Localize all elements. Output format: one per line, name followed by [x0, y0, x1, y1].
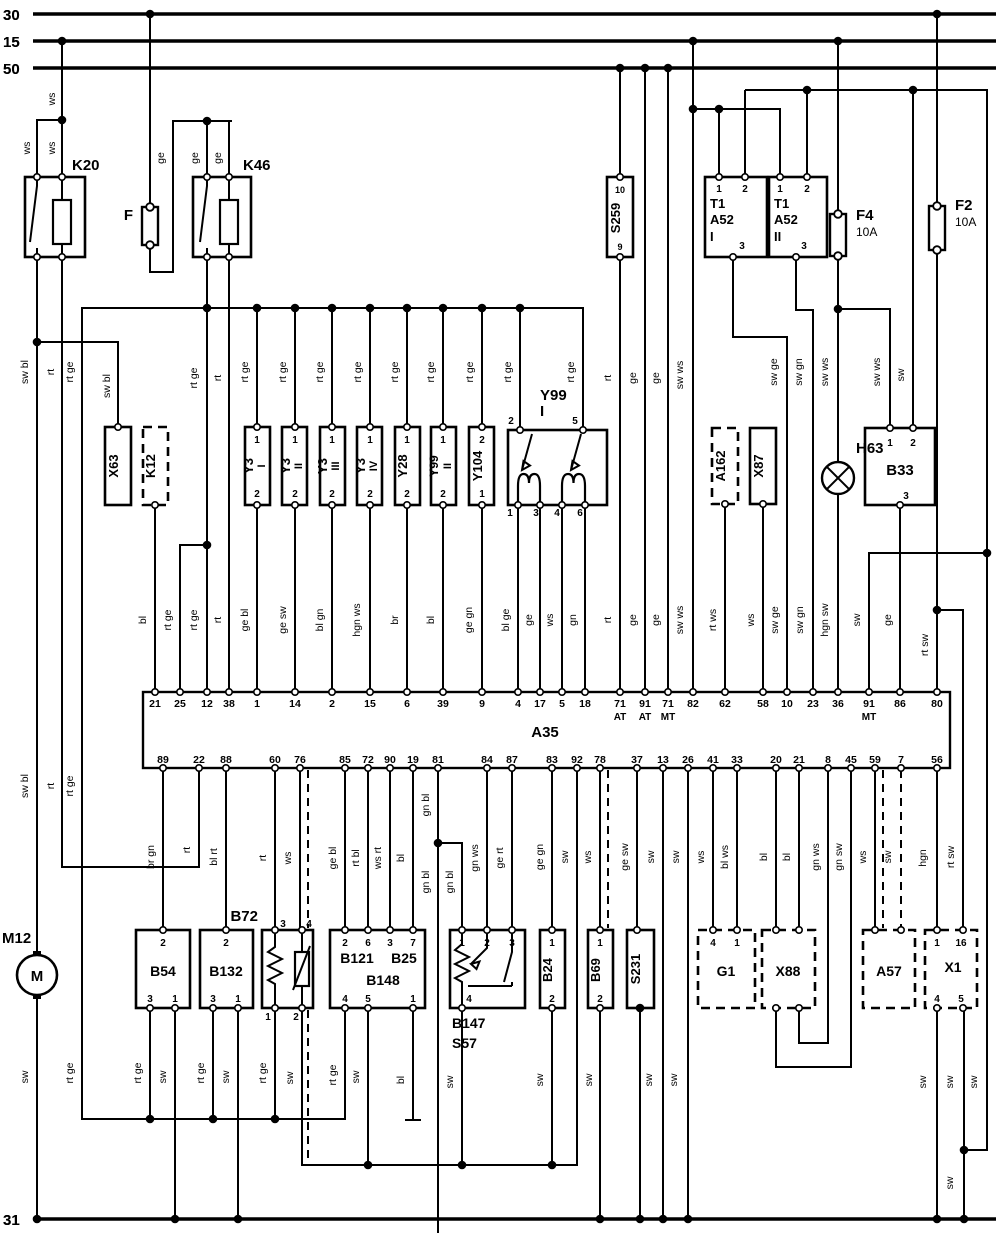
fuse-cap-icon [834, 252, 842, 260]
pin-bump [329, 424, 335, 430]
component-label: B148 [366, 972, 400, 988]
pin-bump [898, 927, 904, 933]
pin-bump [342, 927, 348, 933]
component-label: Y3 [278, 458, 293, 474]
wire [776, 768, 851, 1067]
wire-label: bl gn [314, 608, 326, 631]
component-label: 84 [481, 754, 493, 766]
component-label: AT [614, 712, 627, 723]
component-label: 2 [549, 994, 555, 1005]
component-label: 45 [845, 754, 857, 766]
component-label: 3 [801, 241, 807, 252]
component-label: A52 [710, 212, 734, 227]
component-label: 22 [193, 754, 205, 766]
wire-label: rt ge [162, 609, 174, 630]
wire-label: sw ge [769, 606, 781, 634]
component-label: 1 [734, 938, 740, 949]
component-label: 2 [597, 994, 603, 1005]
pin-bump [292, 689, 298, 695]
pin-bump [742, 174, 748, 180]
component-label: A57 [876, 963, 902, 979]
fuse-icon-F2 [929, 206, 945, 250]
component-label: B25 [391, 950, 417, 966]
pin-bump [934, 927, 940, 933]
wire-label: rt [45, 369, 57, 375]
wire-label: rt ge [195, 1062, 207, 1083]
component-label: 71 [614, 698, 626, 710]
pin-bump [804, 174, 810, 180]
wire-label: ws [544, 614, 556, 628]
component-label: A35 [531, 724, 559, 741]
wire-label: ge bl [239, 609, 251, 632]
pin-bump [796, 1005, 802, 1011]
junction-dot [33, 1215, 42, 1224]
wire-label: hgn ws [351, 603, 363, 636]
component-label: F2 [955, 197, 973, 214]
pin-bump [722, 501, 728, 507]
component-label: 17 [534, 698, 546, 710]
wire-label: rt ge [188, 609, 200, 630]
pin-bump [559, 689, 565, 695]
wire-label: ws [46, 93, 58, 107]
wire-label: rt sw [945, 846, 957, 869]
wire-label: rt [212, 375, 224, 381]
wire-label: sw [944, 1075, 956, 1088]
component-label: Y3 [353, 458, 368, 474]
wire-label: sw [917, 1075, 929, 1088]
junction-dot [458, 1161, 467, 1170]
junction-dot [684, 1215, 693, 1224]
wire-label: sw [851, 613, 863, 626]
wire-label: rt ge [239, 361, 251, 382]
wire-label: sw [882, 850, 894, 863]
component-label: 2 [479, 435, 485, 446]
pin-bump [515, 502, 521, 508]
component-label: 38 [223, 698, 235, 710]
component-label: 3 [280, 919, 286, 930]
wire-label: rt [45, 783, 57, 789]
junction-dot [171, 1215, 180, 1224]
wiring-diagram-page: 30155031MA352125123811421563994175187191… [0, 0, 1000, 1233]
fuse-cap-icon [146, 241, 154, 249]
pin-bump [793, 254, 799, 260]
component-label: 56 [931, 754, 943, 766]
pin-bump [887, 425, 893, 431]
wire-label: ge [627, 372, 639, 384]
pin-bump [517, 427, 523, 433]
junction-dot [659, 1215, 668, 1224]
pin-bump [223, 927, 229, 933]
component-label: 1 [887, 438, 893, 449]
wire-label: ws [282, 852, 294, 866]
pin-bump [226, 174, 232, 180]
pin-bump [617, 689, 623, 695]
component-label: II [293, 463, 305, 469]
component-label: 36 [832, 698, 844, 710]
wire-label: ge sw [619, 843, 631, 871]
pin-bump [960, 1005, 966, 1011]
pin-bump [365, 1005, 371, 1011]
component-label: Y3 [241, 458, 256, 474]
component-label: 7 [898, 754, 904, 766]
component-label: 82 [687, 698, 699, 710]
wire-label: 10A [955, 215, 976, 229]
wire-label: ge gn [463, 607, 475, 633]
pin-bump [515, 689, 521, 695]
wire-label: ws [21, 142, 33, 156]
wire-label: ge rt [494, 847, 506, 868]
junction-dot [641, 64, 650, 73]
component-label: 4 [342, 994, 348, 1005]
pin-bump [549, 927, 555, 933]
junction-dot [203, 541, 212, 550]
wire-label: gn ws [810, 843, 822, 870]
component-label: 5 [559, 698, 565, 710]
wire-label: sw ge [768, 358, 780, 386]
component-label: 88 [220, 754, 232, 766]
pin-bump [387, 927, 393, 933]
wire-label: rt [181, 847, 193, 853]
component-label: F4 [856, 207, 874, 224]
component-label: 1 [410, 994, 416, 1005]
component-label: 5 [958, 994, 964, 1005]
pin-bump [254, 502, 260, 508]
wire-label: rt bl [350, 849, 362, 867]
wire-label: rt ge [352, 361, 364, 382]
component-label: 1 [459, 938, 465, 949]
component-label: 10 [781, 698, 793, 710]
pin-bump [459, 1005, 465, 1011]
component-label: B69 [588, 958, 603, 982]
pin-bump [910, 425, 916, 431]
wire-label: sw [220, 1070, 232, 1083]
component-label: 59 [869, 754, 881, 766]
component-label: 31 [3, 1212, 20, 1229]
pin-bump [367, 689, 373, 695]
component-label: 4 [710, 938, 716, 949]
pin-bump [410, 927, 416, 933]
component-label: 2 [160, 938, 166, 949]
wire-label: sw [284, 1071, 296, 1084]
component-label: X88 [776, 963, 801, 979]
component-label: 9 [479, 698, 485, 710]
wire-label: rt [257, 855, 269, 861]
wire-label: bl [425, 616, 437, 624]
pin-bump [597, 1005, 603, 1011]
component-label: 2 [367, 489, 373, 500]
wire-label: ws [857, 851, 869, 865]
component-label: 58 [757, 698, 769, 710]
component-label: 86 [894, 698, 906, 710]
junction-dot [366, 304, 375, 313]
component-label: 3 [533, 508, 539, 519]
pin-bump [897, 502, 903, 508]
wire-label: br gn [145, 845, 157, 869]
component-label: 2 [742, 184, 748, 195]
wire-label: rt ge [464, 361, 476, 382]
component-label: 1 [254, 698, 260, 710]
component-label: T1 [710, 196, 725, 211]
component-label: 7 [410, 938, 416, 949]
component-label: I [256, 464, 268, 467]
component-label: 4 [466, 994, 472, 1005]
wire-label: rt ge [327, 1064, 339, 1085]
junction-dot [328, 304, 337, 313]
wire-label: ws [745, 614, 757, 628]
component-label: II [774, 229, 781, 244]
component-label: 8 [825, 754, 831, 766]
pin-bump [582, 689, 588, 695]
junction-dot [403, 304, 412, 313]
component-label: 2 [223, 938, 229, 949]
pin-bump [634, 927, 640, 933]
junction-dot [439, 304, 448, 313]
component-label: 76 [294, 754, 306, 766]
component-label: Y3 [315, 458, 330, 474]
wire-label: sw ws [871, 358, 883, 387]
wire-label: sw [670, 850, 682, 863]
wire [693, 109, 780, 177]
wire-label: ws rt [372, 847, 384, 870]
wire-label: ge [882, 614, 894, 626]
junction-dot [548, 1161, 557, 1170]
component-label: 9 [617, 242, 622, 252]
wire-label: ge gn [534, 844, 546, 870]
component-label: K20 [72, 157, 100, 174]
junction-dot [516, 304, 525, 313]
component-label: 91 [639, 698, 651, 710]
junction-dot [203, 304, 212, 313]
pin-bump [177, 689, 183, 695]
wire-label: rt ge [502, 361, 514, 382]
pin-bump [897, 689, 903, 695]
wire-label: sw [19, 1070, 31, 1083]
component-label: MT [661, 712, 675, 723]
pin-bump [367, 424, 373, 430]
fuse-cap-icon [834, 210, 842, 218]
wire-label: hgn sw [819, 603, 831, 637]
component-label: 2 [910, 438, 916, 449]
wire-label: rt ge [277, 361, 289, 382]
pin-bump [597, 927, 603, 933]
junction-dot [146, 10, 155, 19]
component-label: 3 [739, 241, 745, 252]
junction-dot [933, 10, 942, 19]
pin-bump [934, 1005, 940, 1011]
pin-bump [410, 1005, 416, 1011]
pin-bump [484, 927, 490, 933]
pin-bump [479, 689, 485, 695]
junction-dot [834, 37, 843, 46]
component-label: 6 [365, 938, 371, 949]
pin-bump [404, 689, 410, 695]
wire-label: gn sw [833, 843, 845, 871]
junction-dot [478, 304, 487, 313]
pin-bump [960, 927, 966, 933]
component-label: 25 [174, 698, 186, 710]
wire-label: bl rt [208, 848, 220, 866]
pin-bump [254, 689, 260, 695]
component-label: 20 [770, 754, 782, 766]
component-label: B33 [886, 462, 914, 479]
component-label: 23 [807, 698, 819, 710]
component-label: 71 [662, 698, 674, 710]
component-label: 14 [289, 698, 301, 710]
component-label: 2 [292, 489, 298, 500]
component-label: 21 [793, 754, 805, 766]
component-label: 87 [506, 754, 518, 766]
wire-label: rt ge [64, 1062, 76, 1083]
pin-bump [329, 689, 335, 695]
junction-dot [933, 1215, 942, 1224]
junction-dot [271, 1115, 280, 1124]
component-label: 6 [577, 508, 583, 519]
wire-label: bl [395, 1076, 407, 1084]
component-label: 41 [707, 754, 719, 766]
junction-dot [664, 64, 673, 73]
pin-bump [365, 927, 371, 933]
component-label: M12 [2, 930, 31, 947]
junction-dot [234, 1215, 243, 1224]
fuse-cap-icon [146, 203, 154, 211]
pin-bump [617, 174, 623, 180]
wire-label: rt ge [425, 361, 437, 382]
pin-bump [760, 689, 766, 695]
pin-bump [292, 424, 298, 430]
wire-label: sw [157, 1070, 169, 1083]
junction-dot [834, 305, 843, 314]
component-label: T1 [774, 196, 789, 211]
pin-bump [367, 502, 373, 508]
wire-label: bl [137, 616, 149, 624]
component-label: Y99 [540, 387, 567, 404]
component-label: 2 [329, 489, 335, 500]
component-label: 1 [329, 435, 335, 446]
component-label: 16 [955, 938, 967, 949]
component-label: 80 [931, 698, 943, 710]
pin-bump [440, 689, 446, 695]
component-label: B24 [540, 957, 555, 982]
component-label: 30 [3, 7, 20, 24]
fuse-icon-F [142, 207, 158, 245]
pin-bump [59, 254, 65, 260]
component-label: K46 [243, 157, 271, 174]
junction-dot [596, 1215, 605, 1224]
component-label: 1 [716, 184, 722, 195]
wire-label: rt [602, 617, 614, 623]
component-label: B54 [150, 963, 176, 979]
component-label: F [124, 207, 133, 224]
component-label: X87 [751, 454, 766, 477]
pin-bump [642, 689, 648, 695]
junction-dot [803, 86, 812, 95]
component-label: 5 [572, 416, 578, 427]
component-label: 1 [235, 994, 241, 1005]
wire-label: rt ge [188, 367, 200, 388]
component-label: 4 [934, 994, 940, 1005]
component-label: 26 [682, 754, 694, 766]
junction-dot [146, 1115, 155, 1124]
component-label: 15 [364, 698, 376, 710]
pin-bump [872, 927, 878, 933]
pin-bump [665, 689, 671, 695]
junction-dot [616, 64, 625, 73]
component-label: B132 [209, 963, 243, 979]
pin-bump [866, 689, 872, 695]
component-label: I [710, 229, 714, 244]
junction-dot [209, 1115, 218, 1124]
wire-label: sw [350, 1070, 362, 1083]
wire-label: sw [643, 1073, 655, 1086]
wire-label: sw gn [793, 358, 805, 386]
wire-label: gn ws [469, 844, 481, 871]
component-label: 78 [594, 754, 606, 766]
wire-label: rt sw [919, 634, 931, 657]
component-label: 50 [3, 61, 20, 78]
wire-label: rt ge [64, 775, 76, 796]
pin-bump [549, 1005, 555, 1011]
component-label: 18 [579, 698, 591, 710]
component-label: 1 [254, 435, 260, 446]
wire-label: ge sw [277, 606, 289, 634]
wire-label: sw [534, 1073, 546, 1086]
component-label: AT [639, 712, 652, 723]
pin-bump [784, 689, 790, 695]
pin-bump [760, 501, 766, 507]
wire-label: ge [212, 152, 224, 164]
pin-bump [299, 927, 305, 933]
pin-bump [204, 254, 210, 260]
wire-label: ws [46, 142, 58, 156]
component-label: 90 [384, 754, 396, 766]
junction-dot [715, 105, 724, 114]
pin-bump [226, 689, 232, 695]
component-label: 60 [269, 754, 281, 766]
junction-dot [960, 1146, 969, 1155]
component-label: I [540, 403, 544, 420]
wire-label: sw bl [19, 360, 31, 384]
wire-label: ge [189, 152, 201, 164]
component-label: 2 [804, 184, 810, 195]
pin-bump [34, 254, 40, 260]
pin-bump [710, 927, 716, 933]
component-label: A162 [713, 450, 728, 481]
junction-dot [689, 105, 698, 114]
component-label: 2 [484, 938, 490, 949]
pin-bump [404, 424, 410, 430]
component-label: 89 [157, 754, 169, 766]
pin-bump [272, 927, 278, 933]
component-label: 83 [546, 754, 558, 766]
component-label: B72 [230, 908, 258, 925]
component-label: III [330, 461, 342, 470]
component-internal-symbol [53, 200, 71, 244]
pin-bump [272, 1005, 278, 1011]
component-label: 13 [657, 754, 669, 766]
wire [937, 610, 963, 930]
pin-bump [734, 927, 740, 933]
junction-dot [636, 1215, 645, 1224]
pin-bump [147, 1005, 153, 1011]
component-label: 2 [293, 1012, 299, 1023]
wire-label: sw [583, 1073, 595, 1086]
wire-label: gn bl [444, 871, 456, 894]
wire-label: gn bl [420, 871, 432, 894]
pin-bump [226, 254, 232, 260]
pin-bump [34, 174, 40, 180]
pin-bump [722, 689, 728, 695]
component-label: 1 [507, 508, 513, 519]
